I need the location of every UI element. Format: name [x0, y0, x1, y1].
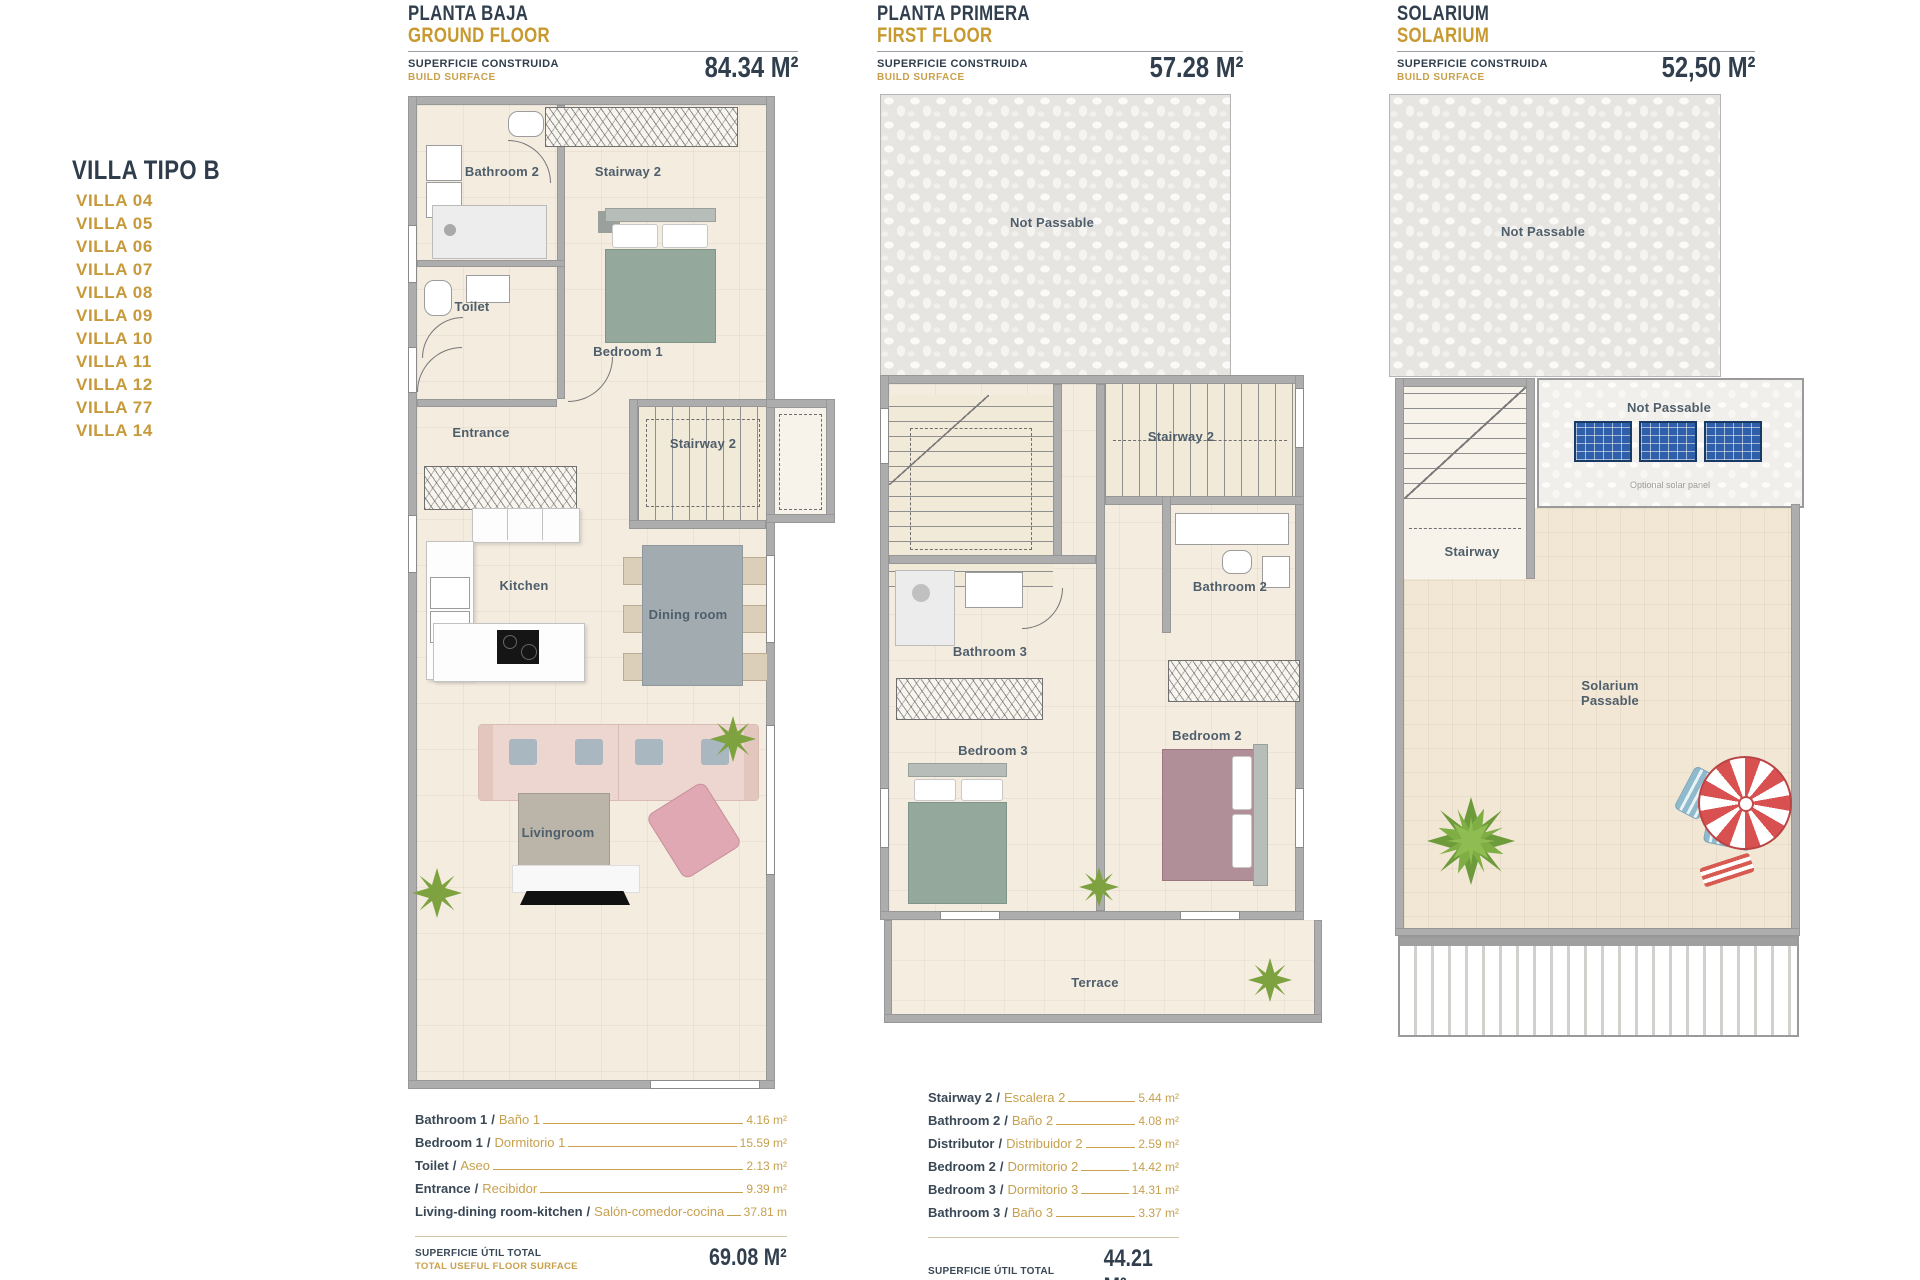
pillow: [961, 779, 1003, 801]
leader-line: [493, 1169, 743, 1170]
slash: /: [487, 1135, 491, 1150]
wall: [629, 520, 766, 529]
leader-line: [540, 1192, 743, 1193]
solarium-label-line2: Passable: [1550, 693, 1670, 708]
leader-line: [543, 1123, 743, 1124]
burner: [521, 644, 537, 660]
row-name-es: Distribuidor 2: [1006, 1136, 1083, 1151]
villa-list-item: VILLA 06: [76, 237, 153, 257]
solar-panel: [1704, 421, 1762, 462]
row-name-es: Aseo: [460, 1158, 490, 1173]
pergola-slats: [1398, 936, 1799, 1037]
table-row: Bathroom 2 / Baño 2 4.08 m²: [928, 1113, 1179, 1136]
row-name-en: Bedroom 3: [928, 1182, 996, 1197]
toilet: [508, 111, 544, 137]
row-value: 15.59 m²: [740, 1136, 787, 1150]
pillow: [1232, 756, 1252, 810]
build-surface-value: 57.28 M²: [1149, 52, 1243, 85]
counter-divider: [542, 509, 543, 540]
wall: [884, 1014, 1322, 1023]
sofa-armrest: [479, 725, 493, 800]
plant: [412, 868, 462, 918]
wall: [1162, 496, 1171, 633]
table-row: Bedroom 2 / Dormitorio 2 14.42 m²: [928, 1159, 1179, 1182]
table-row: Entrance / Recibidor 9.39 m²: [415, 1181, 787, 1204]
wall: [417, 260, 565, 267]
villa-list-item: VILLA 77: [76, 398, 153, 418]
wall: [557, 105, 565, 399]
wall: [1791, 504, 1800, 936]
surface-label-en: BUILD SURFACE: [1397, 72, 1485, 83]
slash: /: [996, 1090, 1000, 1105]
slash: /: [1004, 1205, 1008, 1220]
first-floor-plan: Not Passable: [870, 88, 1340, 1063]
window: [880, 788, 889, 848]
villa-list-item: VILLA 14: [76, 421, 153, 441]
wall: [1096, 384, 1105, 911]
leader-line: [1081, 1193, 1128, 1194]
room-label-stairway2-mid: Stairway 2: [643, 436, 763, 451]
room-label-dining: Dining room: [628, 607, 748, 622]
room-label-kitchen: Kitchen: [464, 578, 584, 593]
wall: [766, 514, 835, 523]
row-value: 37.81 m: [744, 1205, 787, 1219]
table-total: SUPERFICIE ÚTIL TOTAL TOTAL USEFUL FLOOR…: [415, 1244, 787, 1272]
row-name-es: Baño 1: [499, 1112, 540, 1127]
terrace-floor: [884, 920, 1322, 1014]
wall: [889, 555, 1096, 564]
row-value: 2.59 m²: [1138, 1137, 1179, 1151]
row-name-es: Escalera 2: [1004, 1090, 1065, 1105]
wall: [630, 399, 775, 407]
cushion: [575, 739, 603, 765]
row-name-es: Salón-comedor-cocina: [594, 1204, 724, 1219]
stairway-label: Stairway: [1412, 544, 1532, 559]
not-passable-label: Not Passable: [1483, 224, 1603, 239]
chair: [742, 557, 768, 585]
solarium-plan: Not Passable Stairway Not Passable Optio…: [1375, 88, 1820, 1048]
surface-label-es: SUPERFICIE CONSTRUIDA: [877, 58, 1028, 70]
row-name-es: Baño 2: [1012, 1113, 1053, 1128]
wall: [1395, 378, 1404, 936]
room-label-terrace: Terrace: [1035, 975, 1155, 990]
window: [1295, 788, 1304, 848]
umbrella-pole: [1738, 796, 1754, 812]
sink: [965, 572, 1023, 608]
row-name-es: Dormitorio 1: [495, 1135, 566, 1150]
wardrobe: [424, 466, 577, 510]
villa-list-item: VILLA 04: [76, 191, 153, 211]
wall: [417, 399, 557, 407]
wall: [408, 96, 775, 105]
shower-drain: [912, 584, 930, 602]
table-row: Living-dining room-kitchen / Salón-comed…: [415, 1204, 787, 1227]
slash: /: [587, 1204, 591, 1219]
plan-title-en: SOLARIUM: [1397, 24, 1489, 48]
leader-line: [568, 1146, 736, 1147]
plan-title-es: SOLARIUM: [1397, 2, 1489, 26]
wall: [1395, 928, 1800, 936]
wall: [826, 399, 835, 523]
wall: [1395, 378, 1535, 387]
wall: [1314, 920, 1322, 1023]
entrance-door: [408, 347, 417, 393]
solar-panel: [1574, 421, 1632, 462]
stair-diagonal: [1404, 387, 1526, 499]
table-total: SUPERFICIE ÚTIL TOTAL TOTAL USEFUL FLOOR…: [928, 1245, 1179, 1280]
table-row: Bedroom 1 / Dormitorio 1 15.59 m²: [415, 1135, 787, 1158]
bed-headboard: [908, 763, 1007, 777]
bed-headboard: [605, 208, 716, 222]
floorplan-sheet: VILLA TIPO B VILLA 04 VILLA 05 VILLA 06 …: [0, 0, 1920, 1280]
leader-line: [1056, 1124, 1135, 1125]
solarium-label: Solarium Passable: [1550, 678, 1670, 708]
total-label-es: SUPERFICIE ÚTIL TOTAL: [415, 1248, 578, 1259]
row-value: 14.31 m²: [1132, 1183, 1179, 1197]
stairs-guide: [779, 414, 822, 510]
row-value: 9.39 m²: [746, 1182, 787, 1196]
row-name-en: Toilet: [415, 1158, 449, 1173]
row-name-en: Bedroom 2: [928, 1159, 996, 1174]
room-label-bedroom3: Bedroom 3: [933, 743, 1053, 758]
table-row: Stairway 2 / Escalera 2 5.44 m²: [928, 1090, 1179, 1113]
total-label-es: SUPERFICIE ÚTIL TOTAL: [928, 1266, 1087, 1277]
table-row: Bedroom 3 / Dormitorio 3 14.31 m²: [928, 1182, 1179, 1205]
room-label-bathroom2: Bathroom 2: [442, 164, 562, 179]
first-floor-header: PLANTA PRIMERA FIRST FLOOR SUPERFICIE CO…: [877, 2, 1243, 86]
shower-drain: [444, 224, 456, 236]
table-row: Bathroom 1 / Baño 1 4.16 m²: [415, 1112, 787, 1135]
sofa: [478, 724, 759, 801]
ground-floor-plan: Bathroom 2 Stairway 2 Toilet Bedroom 1 E…: [400, 85, 840, 1100]
total-labels: SUPERFICIE ÚTIL TOTAL TOTAL USEFUL FLOOR…: [928, 1266, 1087, 1280]
pillow: [1232, 814, 1252, 868]
toilet: [1222, 550, 1252, 574]
room-label-stairway2: Stairway 2: [1121, 429, 1241, 444]
total-label-en: TOTAL USEFUL FLOOR SURFACE: [415, 1261, 578, 1272]
slash: /: [491, 1112, 495, 1127]
ground-floor-areas-table: Bathroom 1 / Baño 1 4.16 m² Bedroom 1 / …: [415, 1112, 787, 1272]
wall: [884, 920, 892, 1023]
plan-title-en: FIRST FLOOR: [877, 24, 993, 48]
row-name-en: Bedroom 1: [415, 1135, 483, 1150]
villa-list-item: VILLA 11: [76, 352, 152, 372]
wall: [880, 375, 1304, 384]
table-row: Distributor / Distribuidor 2 2.59 m²: [928, 1136, 1179, 1159]
slash: /: [1004, 1113, 1008, 1128]
gravel-roof: [880, 94, 1231, 377]
row-name-es: Dormitorio 2: [1008, 1159, 1079, 1174]
kitchen-counter: [472, 508, 580, 543]
window: [408, 515, 417, 573]
wardrobe: [896, 678, 1043, 720]
room-label-bedroom2: Bedroom 2: [1147, 728, 1267, 743]
shower: [895, 570, 955, 646]
slash: /: [1000, 1182, 1004, 1197]
villa-list-item: VILLA 08: [76, 283, 153, 303]
tv: [520, 891, 630, 905]
stairs-guide: [910, 428, 1032, 550]
row-value: 14.42 m²: [1132, 1160, 1179, 1174]
surface-label-es: SUPERFICIE CONSTRUIDA: [408, 58, 559, 70]
villa-list-item: VILLA 07: [76, 260, 153, 280]
room-label-entrance: Entrance: [421, 425, 541, 440]
optional-solar-caption: Optional solar panel: [1600, 480, 1740, 490]
surface-label-en: BUILD SURFACE: [408, 72, 496, 83]
build-surface-value: 52,50 M²: [1661, 52, 1755, 85]
room-label-bathroom2: Bathroom 2: [1170, 579, 1290, 594]
row-name-en: Living-dining room-kitchen: [415, 1204, 583, 1219]
leader-line: [1086, 1147, 1136, 1148]
plant: [1079, 867, 1119, 907]
row-value: 5.44 m²: [1138, 1091, 1179, 1105]
pillow: [612, 224, 658, 248]
plan-title-es: PLANTA BAJA: [408, 2, 528, 26]
wall: [1105, 496, 1304, 505]
build-surface-value: 84.34 M²: [704, 52, 798, 85]
plan-title-es: PLANTA PRIMERA: [877, 2, 1030, 26]
pillow: [914, 779, 956, 801]
row-value: 4.08 m²: [1138, 1114, 1179, 1128]
row-name-es: Dormitorio 3: [1008, 1182, 1079, 1197]
window: [766, 555, 775, 643]
leader-line: [1068, 1101, 1135, 1102]
table-rule: [415, 1236, 787, 1237]
total-value: 69.08 M²: [709, 1244, 787, 1272]
parasol-umbrella: [1698, 756, 1792, 850]
leader-line: [727, 1215, 740, 1216]
bed-headboard: [1253, 744, 1268, 886]
window: [766, 725, 775, 875]
row-name-en: Bathroom 3: [928, 1205, 1000, 1220]
terrace-door: [1180, 911, 1240, 920]
room-label-bathroom3: Bathroom 3: [930, 644, 1050, 659]
villa-list-item: VILLA 10: [76, 329, 153, 349]
chair: [742, 653, 768, 681]
room-label-bedroom1: Bedroom 1: [568, 344, 688, 359]
tv-console: [512, 865, 640, 893]
cushion: [635, 739, 663, 765]
stairs-guide: [646, 419, 760, 507]
row-name-es: Recibidor: [482, 1181, 537, 1196]
room-label-living: Livingroom: [498, 825, 618, 840]
row-name-en: Bathroom 1: [415, 1112, 487, 1127]
row-value: 2.13 m²: [746, 1159, 787, 1173]
row-name-en: Entrance: [415, 1181, 471, 1196]
wall: [629, 399, 638, 529]
slash: /: [998, 1136, 1002, 1151]
slash: /: [475, 1181, 479, 1196]
window: [408, 225, 417, 283]
glass-door: [650, 1080, 760, 1089]
room-label-toilet: Toilet: [412, 299, 532, 314]
cushion: [509, 739, 537, 765]
counter-divider: [507, 509, 508, 540]
total-value: 44.21 M²: [1103, 1245, 1179, 1280]
not-passable-label: Not Passable: [1609, 400, 1729, 415]
pillow: [662, 224, 708, 248]
solarium-header: SOLARIUM SOLARIUM SUPERFICIE CONSTRUIDA …: [1397, 2, 1755, 86]
villa-list-item: VILLA 12: [76, 375, 153, 395]
cooktop: [497, 630, 539, 664]
row-name-en: Bathroom 2: [928, 1113, 1000, 1128]
stairs-guide: [1409, 528, 1521, 529]
first-floor-areas-table: Stairway 2 / Escalera 2 5.44 m² Bathroom…: [928, 1090, 1179, 1280]
surface-label-en: BUILD SURFACE: [877, 72, 965, 83]
ground-floor-header: PLANTA BAJA GROUND FLOOR SUPERFICIE CONS…: [408, 2, 798, 86]
bathtub: [1175, 513, 1289, 545]
wall: [1053, 384, 1062, 564]
sofa-split: [618, 725, 619, 800]
plan-title-en: GROUND FLOOR: [408, 24, 550, 48]
table-rule: [928, 1237, 1179, 1238]
solar-panel: [1639, 421, 1697, 462]
row-name-en: Stairway 2: [928, 1090, 992, 1105]
terrace-door: [940, 911, 1000, 920]
pergola-beam: [1400, 938, 1797, 946]
table-row: Toilet / Aseo 2.13 m²: [415, 1158, 787, 1181]
row-value: 4.16 m²: [746, 1113, 787, 1127]
villa-list-item: VILLA 09: [76, 306, 153, 326]
burner: [503, 635, 517, 649]
row-value: 3.37 m²: [1138, 1206, 1179, 1220]
slash: /: [453, 1158, 457, 1173]
solarium-label-line1: Solarium: [1550, 678, 1670, 693]
plant: [710, 716, 756, 762]
row-name-en: Distributor: [928, 1136, 994, 1151]
wardrobe: [1168, 660, 1300, 702]
wardrobe: [545, 107, 738, 147]
not-passable-label: Not Passable: [992, 215, 1112, 230]
surface-label-es: SUPERFICIE CONSTRUIDA: [1397, 58, 1548, 70]
row-name-es: Baño 3: [1012, 1205, 1053, 1220]
leader-line: [1081, 1170, 1128, 1171]
window: [880, 408, 889, 464]
bed: [908, 802, 1007, 904]
room-label-stairway2: Stairway 2: [568, 164, 688, 179]
total-labels: SUPERFICIE ÚTIL TOTAL TOTAL USEFUL FLOOR…: [415, 1248, 578, 1272]
window: [1295, 388, 1304, 448]
table-row: Bathroom 3 / Baño 3 3.37 m²: [928, 1205, 1179, 1228]
slash: /: [1000, 1159, 1004, 1174]
bed: [605, 249, 716, 343]
villa-list-item: VILLA 05: [76, 214, 153, 234]
leader-line: [1056, 1216, 1135, 1217]
page-title: VILLA TIPO B: [72, 155, 220, 186]
wall: [766, 399, 835, 408]
